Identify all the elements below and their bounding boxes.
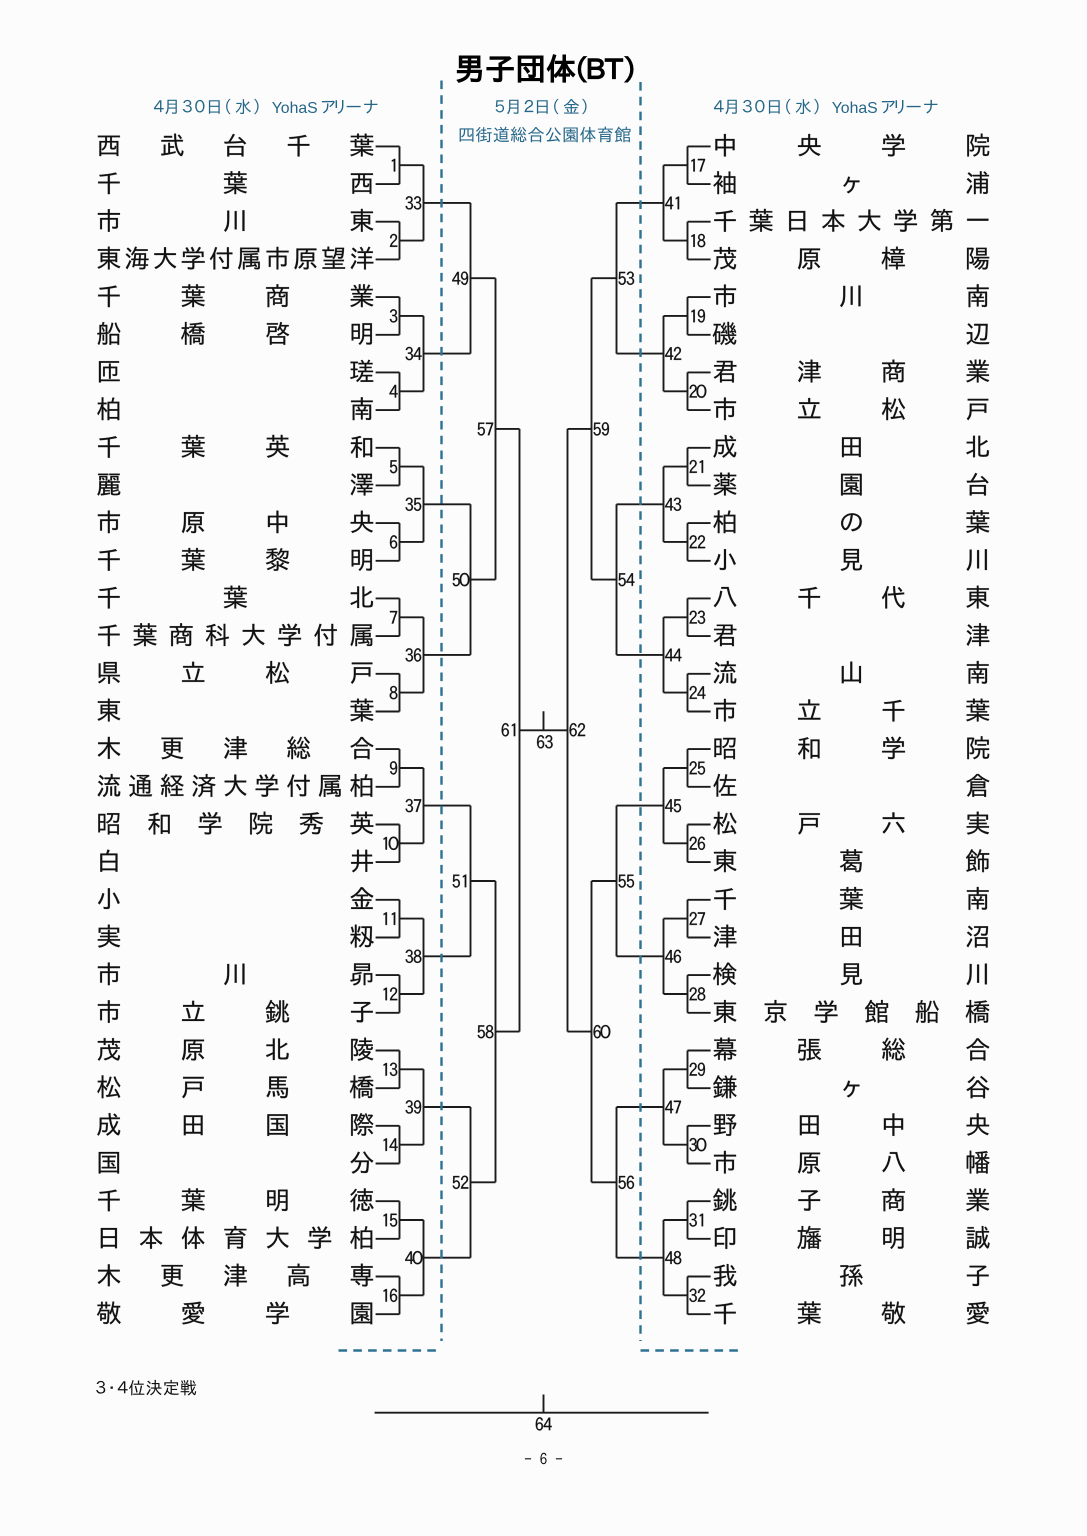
svg-text:YohaS: YohaS xyxy=(832,100,878,117)
svg-text:YohaS: YohaS xyxy=(272,100,318,117)
